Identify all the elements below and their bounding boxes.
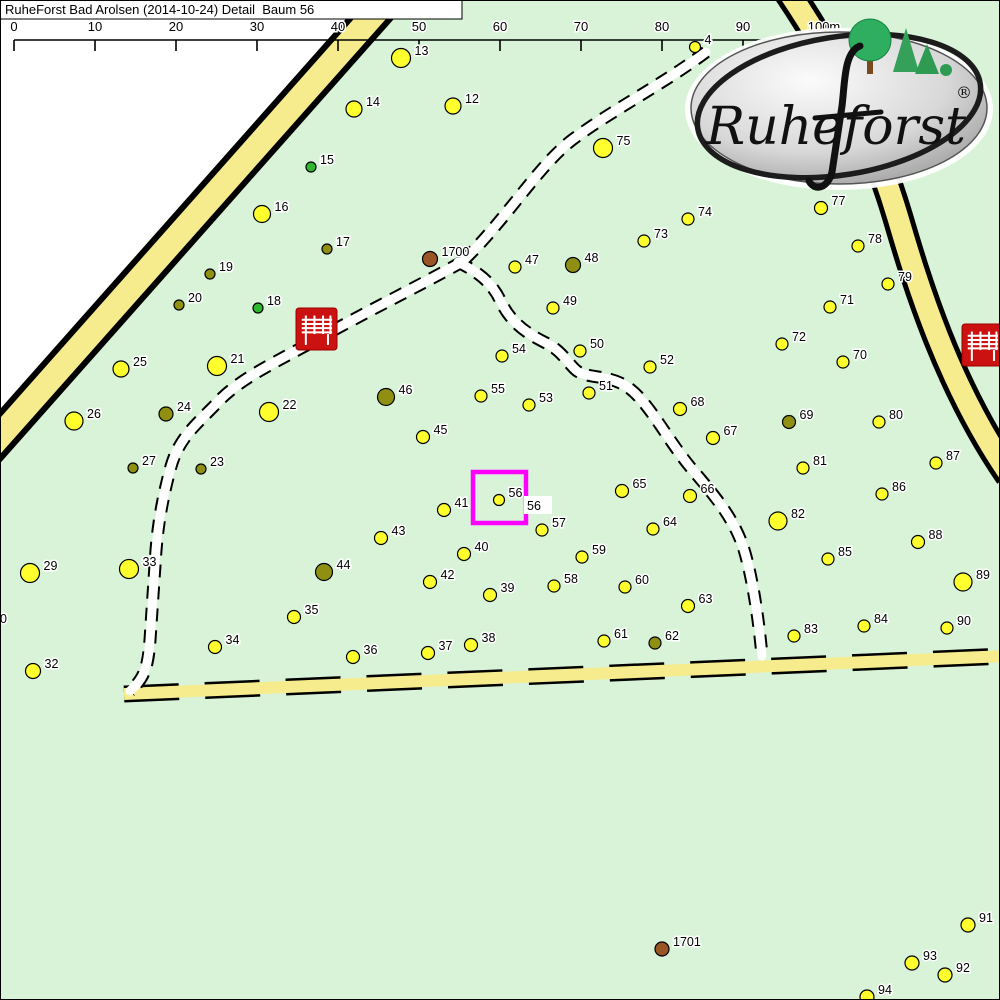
tree-dot-90[interactable] [941, 622, 953, 634]
tree-dot-52[interactable] [644, 361, 656, 373]
tree-dot-68[interactable] [674, 403, 687, 416]
tree-dot-27[interactable] [128, 463, 138, 473]
scale-tick-label: 50 [412, 19, 426, 34]
tree-label-46: 46 [399, 383, 413, 397]
tree-dot-67[interactable] [707, 432, 720, 445]
tree-label-48: 48 [585, 251, 599, 265]
tree-dot-14[interactable] [346, 101, 362, 117]
tree-dot-83[interactable] [788, 630, 800, 642]
tree-dot-54[interactable] [496, 350, 508, 362]
tree-dot-82[interactable] [769, 512, 787, 530]
logo-round-tree [849, 19, 891, 61]
tree-label-35: 35 [305, 603, 319, 617]
tree-dot-34[interactable] [209, 641, 222, 654]
tree-dot-45[interactable] [417, 431, 430, 444]
tree-dot-38[interactable] [465, 639, 478, 652]
tree-label-80: 80 [889, 408, 903, 422]
tree-label-56: 56 [509, 486, 523, 500]
map-label-30: 30 [0, 612, 7, 626]
tree-label-18: 18 [267, 294, 281, 308]
tree-label-41: 41 [455, 496, 469, 510]
tree-dot-73[interactable] [638, 235, 650, 247]
tree-label-33: 33 [143, 555, 157, 569]
tree-dot-51[interactable] [583, 387, 595, 399]
tree-dot-4[interactable] [690, 42, 701, 53]
tree-dot-78[interactable] [852, 240, 864, 252]
tree-dot-71[interactable] [824, 301, 836, 313]
tree-dot-92[interactable] [938, 968, 952, 982]
tree-dot-63[interactable] [682, 600, 695, 613]
tree-dot-32[interactable] [26, 664, 41, 679]
tree-dot-44[interactable] [316, 564, 333, 581]
tree-dot-26[interactable] [65, 412, 83, 430]
tree-label-23: 23 [210, 455, 224, 469]
tree-label-21: 21 [231, 352, 245, 366]
tree-dot-42[interactable] [424, 576, 437, 589]
tree-label-94: 94 [878, 983, 892, 997]
tree-label-29: 29 [44, 559, 58, 573]
tree-dot-88[interactable] [912, 536, 925, 549]
tree-label-14: 14 [366, 95, 380, 109]
tree-label-52: 52 [660, 353, 674, 367]
tree-dot-40[interactable] [458, 548, 471, 561]
tree-dot-69[interactable] [783, 416, 796, 429]
tree-dot-23[interactable] [196, 464, 206, 474]
tree-label-70: 70 [853, 348, 867, 362]
tree-dot-94[interactable] [860, 990, 874, 1000]
tree-label-93: 93 [923, 949, 937, 963]
tree-label-85: 85 [838, 545, 852, 559]
tree-label-55: 55 [491, 382, 505, 396]
tree-label-67: 67 [724, 424, 738, 438]
tree-dot-33[interactable] [120, 560, 139, 579]
tree-dot-89[interactable] [954, 573, 972, 591]
tree-label-44: 44 [337, 558, 351, 572]
tree-label-64: 64 [663, 515, 677, 529]
tree-dot-80[interactable] [873, 416, 885, 428]
tree-dot-53[interactable] [523, 399, 535, 411]
tree-dot-58[interactable] [548, 580, 560, 592]
tree-label-90: 90 [957, 614, 971, 628]
tree-dot-16[interactable] [254, 206, 271, 223]
tree-dot-48[interactable] [566, 258, 581, 273]
tree-dot-24[interactable] [159, 407, 173, 421]
tree-label-37: 37 [439, 639, 453, 653]
tree-label-12: 12 [465, 92, 479, 106]
tree-dot-15[interactable] [306, 162, 316, 172]
tree-label-62: 62 [665, 629, 679, 643]
tree-label-57: 57 [552, 516, 566, 530]
tree-label-40: 40 [475, 540, 489, 554]
tree-label-72: 72 [792, 330, 806, 344]
tree-label-65: 65 [633, 477, 647, 491]
tree-label-82: 82 [791, 507, 805, 521]
tree-dot-21[interactable] [208, 357, 227, 376]
map-label-56: 56 [527, 499, 541, 513]
map-title: RuheForst Bad Arolsen (2014-10-24) Detai… [5, 2, 314, 17]
map-viewport[interactable]: 0102030405060708090100m41213141516171819… [0, 0, 1000, 1000]
tree-dot-22[interactable] [260, 403, 279, 422]
tree-dot-61[interactable] [598, 635, 610, 647]
tree-label-74: 74 [698, 205, 712, 219]
tree-dot-86[interactable] [876, 488, 888, 500]
tree-dot-41[interactable] [438, 504, 451, 517]
tree-label-42: 42 [441, 568, 455, 582]
tree-dot-62[interactable] [649, 637, 661, 649]
tree-dot-55[interactable] [475, 390, 487, 402]
tree-dot-57[interactable] [536, 524, 548, 536]
forest-map[interactable]: 0102030405060708090100m41213141516171819… [0, 0, 1000, 1000]
tree-dot-81[interactable] [797, 462, 809, 474]
tree-dot-72[interactable] [776, 338, 788, 350]
tree-dot-43[interactable] [375, 532, 388, 545]
tree-dot-85[interactable] [822, 553, 834, 565]
tree-dot-17[interactable] [322, 244, 332, 254]
tree-dot-37[interactable] [422, 647, 435, 660]
tree-label-1701: 1701 [673, 935, 701, 949]
tree-dot-1701[interactable] [655, 942, 669, 956]
tree-dot-46[interactable] [378, 389, 395, 406]
tree-label-13: 13 [415, 44, 429, 58]
logo-registered-mark: ® [956, 83, 972, 102]
tree-dot-20[interactable] [174, 300, 184, 310]
tree-dot-77[interactable] [815, 202, 828, 215]
tree-label-32: 32 [45, 657, 59, 671]
tree-label-86: 86 [892, 480, 906, 494]
tree-label-78: 78 [868, 232, 882, 246]
tree-label-87: 87 [946, 449, 960, 463]
tree-label-26: 26 [87, 407, 101, 421]
tree-label-60: 60 [635, 573, 649, 587]
tree-label-63: 63 [699, 592, 713, 606]
tree-label-34: 34 [226, 633, 240, 647]
tree-label-53: 53 [539, 391, 553, 405]
tree-label-81: 81 [813, 454, 827, 468]
tree-label-79: 79 [898, 270, 912, 284]
tree-dot-1700[interactable] [423, 252, 438, 267]
tree-dot-74[interactable] [682, 213, 694, 225]
tree-label-25: 25 [133, 355, 147, 369]
tree-dot-64[interactable] [647, 523, 659, 535]
scale-tick-label: 80 [655, 19, 669, 34]
tree-dot-36[interactable] [347, 651, 360, 664]
tree-label-20: 20 [188, 291, 202, 305]
tree-label-17: 17 [336, 235, 350, 249]
tree-dot-84[interactable] [858, 620, 870, 632]
scale-tick-label: 10 [88, 19, 102, 34]
tree-label-19: 19 [219, 260, 233, 274]
tree-label-27: 27 [142, 454, 156, 468]
scale-tick-label: 40 [331, 19, 345, 34]
tree-dot-50[interactable] [574, 345, 586, 357]
tree-label-83: 83 [804, 622, 818, 636]
tree-label-77: 77 [832, 194, 846, 208]
tree-label-89: 89 [976, 568, 990, 582]
scale-tick-label: 70 [574, 19, 588, 34]
tree-label-47: 47 [525, 253, 539, 267]
tree-dot-18[interactable] [253, 303, 263, 313]
tree-label-24: 24 [177, 400, 191, 414]
tree-label-54: 54 [512, 342, 526, 356]
tree-dot-91[interactable] [961, 918, 975, 932]
scale-tick-label: 20 [169, 19, 183, 34]
tree-dot-65[interactable] [616, 485, 629, 498]
tree-label-92: 92 [956, 961, 970, 975]
tree-label-73: 73 [654, 227, 668, 241]
tree-dot-87[interactable] [930, 457, 942, 469]
bench-icon [962, 324, 1000, 366]
tree-label-61: 61 [614, 627, 628, 641]
tree-dot-12[interactable] [445, 98, 461, 114]
tree-label-36: 36 [364, 643, 378, 657]
tree-dot-66[interactable] [684, 490, 697, 503]
logo-bush [940, 64, 952, 76]
tree-label-71: 71 [840, 293, 854, 307]
tree-label-59: 59 [592, 543, 606, 557]
tree-label-39: 39 [501, 581, 515, 595]
title-bar: RuheForst Bad Arolsen (2014-10-24) Detai… [0, 0, 462, 19]
tree-dot-70[interactable] [837, 356, 849, 368]
scale-tick-label: 60 [493, 19, 507, 34]
tree-label-45: 45 [434, 423, 448, 437]
tree-dot-75[interactable] [594, 139, 613, 158]
tree-label-38: 38 [482, 631, 496, 645]
tree-label-1700: 1700 [442, 245, 470, 259]
tree-dot-93[interactable] [905, 956, 919, 970]
tree-label-43: 43 [392, 524, 406, 538]
scale-tick-label: 90 [736, 19, 750, 34]
tree-dot-25[interactable] [113, 361, 129, 377]
tree-label-75: 75 [617, 134, 631, 148]
tree-label-68: 68 [691, 395, 705, 409]
tree-label-88: 88 [929, 528, 943, 542]
tree-label-4: 4 [705, 33, 712, 47]
tree-label-50: 50 [590, 337, 604, 351]
tree-dot-59[interactable] [576, 551, 588, 563]
tree-dot-79[interactable] [882, 278, 894, 290]
tree-dot-19[interactable] [205, 269, 215, 279]
tree-label-84: 84 [874, 612, 888, 626]
tree-dot-49[interactable] [547, 302, 559, 314]
tree-dot-60[interactable] [619, 581, 631, 593]
scale-tick-label: 30 [250, 19, 264, 34]
tree-label-51: 51 [599, 379, 613, 393]
tree-dot-29[interactable] [21, 564, 40, 583]
tree-label-91: 91 [979, 911, 993, 925]
tree-dot-39[interactable] [484, 589, 497, 602]
tree-dot-47[interactable] [509, 261, 521, 273]
tree-label-58: 58 [564, 572, 578, 586]
tree-dot-35[interactable] [288, 611, 301, 624]
tree-label-49: 49 [563, 294, 577, 308]
tree-label-16: 16 [275, 200, 289, 214]
tree-label-15: 15 [320, 153, 334, 167]
scale-tick-label: 0 [10, 19, 17, 34]
bench-icon [296, 308, 337, 350]
tree-label-22: 22 [283, 398, 297, 412]
tree-label-69: 69 [800, 408, 814, 422]
tree-label-66: 66 [701, 482, 715, 496]
tree-dot-56[interactable] [494, 495, 505, 506]
tree-dot-13[interactable] [392, 49, 411, 68]
